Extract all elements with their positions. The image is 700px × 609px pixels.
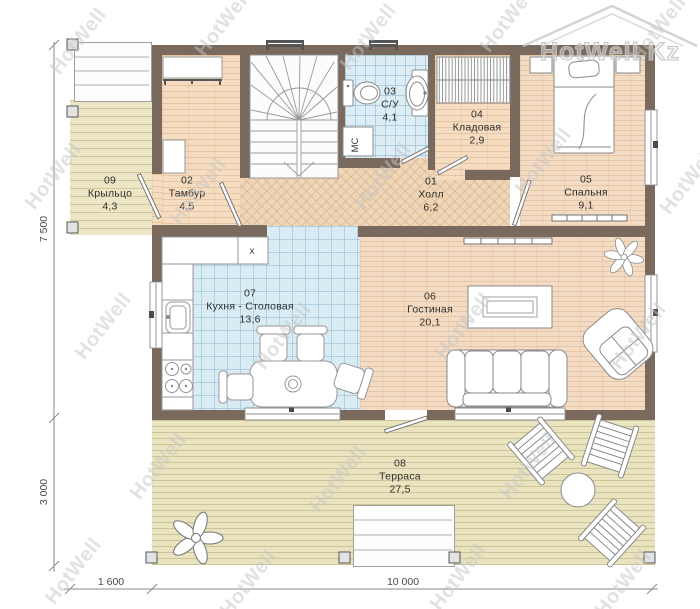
room-number: 09 xyxy=(88,175,132,188)
kitchen-bottom-window xyxy=(245,407,340,420)
vents xyxy=(266,40,398,50)
room-number: 06 xyxy=(407,291,453,304)
room-area: 20,1 xyxy=(407,317,453,330)
room-number: 05 xyxy=(564,174,608,187)
vent-stairs xyxy=(266,40,304,50)
plant xyxy=(604,237,645,277)
dimension-height-terrace: 3 000 xyxy=(38,479,50,505)
room-area: 6,2 xyxy=(418,202,444,215)
dining-chair xyxy=(257,326,290,361)
room-number: 04 xyxy=(453,109,502,122)
furniture-tambur xyxy=(163,57,222,173)
wardrobe-rail xyxy=(163,80,222,85)
door-leaf-terrace xyxy=(385,416,428,433)
nightstand-right xyxy=(616,57,640,73)
room-label-hall: 01Холл6,2 xyxy=(418,176,444,215)
wardrobe xyxy=(163,57,222,78)
dining-chair xyxy=(219,371,253,403)
living-bottom-window xyxy=(455,407,565,420)
furniture-bedroom xyxy=(530,56,640,153)
room-label-porch: 09Крыльцо4,3 xyxy=(88,175,132,214)
room-label-bathroom: 03С/У4,1 xyxy=(381,86,399,125)
dimension-width-main: 10 000 xyxy=(387,576,419,588)
plan-overlay: МС х xyxy=(0,0,700,609)
sofa xyxy=(447,350,567,407)
dining-chair xyxy=(294,326,327,361)
room-area: 4,1 xyxy=(381,112,399,125)
bedroom-radiator xyxy=(552,215,627,221)
bedroom-right-window xyxy=(645,110,658,185)
coffee-table xyxy=(468,286,552,328)
room-name: Кладовая xyxy=(453,122,502,135)
bathroom-sink xyxy=(406,70,428,116)
room-number: 08 xyxy=(379,458,421,471)
door-leaf-storage xyxy=(437,156,468,175)
room-label-tambur: 02Тамбур4,5 xyxy=(169,175,206,214)
room-label-storage: 04Кладовая2,9 xyxy=(453,109,502,148)
room-area: 2,9 xyxy=(453,135,502,148)
terrace-table xyxy=(561,473,595,507)
furniture-living xyxy=(447,237,659,407)
floor-plan: МС х xyxy=(0,0,700,609)
room-name: Гостиная xyxy=(407,304,453,317)
porch-steps-lines xyxy=(75,57,149,85)
toilet xyxy=(343,80,380,106)
deck-chair xyxy=(581,414,640,479)
staircase xyxy=(250,55,338,178)
door-leaf-bathroom xyxy=(401,147,429,164)
room-number: 02 xyxy=(169,175,206,188)
dining-chair xyxy=(332,359,374,400)
radiators xyxy=(464,215,627,244)
room-area: 9,1 xyxy=(564,200,608,213)
hall-cabinet xyxy=(163,140,185,173)
porch-posts xyxy=(67,39,78,233)
dimension-height-main: 7 500 xyxy=(38,216,50,242)
door-leaf-bedroom xyxy=(513,180,532,226)
dimension-width-porch: 1 600 xyxy=(98,576,124,588)
room-name: Спальня xyxy=(564,187,608,200)
room-name: С/У xyxy=(381,99,399,112)
room-area: 13,6 xyxy=(206,314,294,327)
room-name: Тамбур xyxy=(169,188,206,201)
room-name: Крыльцо xyxy=(88,188,132,201)
door-leaf-tambur xyxy=(220,182,242,226)
vent-bathroom xyxy=(369,40,398,50)
kitchen-sink xyxy=(166,302,190,333)
room-name: Терраса xyxy=(379,471,421,484)
terrace-posts xyxy=(146,552,655,563)
terrace-plant xyxy=(171,510,223,565)
storage-shelves xyxy=(437,57,510,103)
room-area: 27,5 xyxy=(379,484,421,497)
living-radiator xyxy=(464,238,552,244)
terrace-steps-lines xyxy=(354,520,452,550)
room-number: 07 xyxy=(206,288,294,301)
washer-label: МС xyxy=(350,137,361,152)
dining-table xyxy=(250,361,337,407)
room-number: 01 xyxy=(418,176,444,189)
room-name: Холл xyxy=(418,189,444,202)
door-leaf-entrance xyxy=(137,174,160,219)
nightstand-left xyxy=(530,57,552,73)
kitchen-unit-label: х xyxy=(250,246,255,257)
kitchen-left-window xyxy=(149,282,162,348)
room-label-bedroom: 05Спальня9,1 xyxy=(564,174,608,213)
room-name: Кухня - Столовая xyxy=(206,301,294,314)
deck-chair xyxy=(507,416,575,486)
bed xyxy=(554,56,614,153)
room-number: 03 xyxy=(381,86,399,99)
deck-chair xyxy=(578,498,647,568)
room-area: 4,3 xyxy=(88,201,132,214)
room-label-kitchen: 07Кухня - Столовая13,6 xyxy=(206,288,294,327)
room-label-terrace: 08Терраса27,5 xyxy=(379,458,421,497)
room-label-living: 06Гостиная20,1 xyxy=(407,291,453,330)
room-area: 4,5 xyxy=(169,201,206,214)
